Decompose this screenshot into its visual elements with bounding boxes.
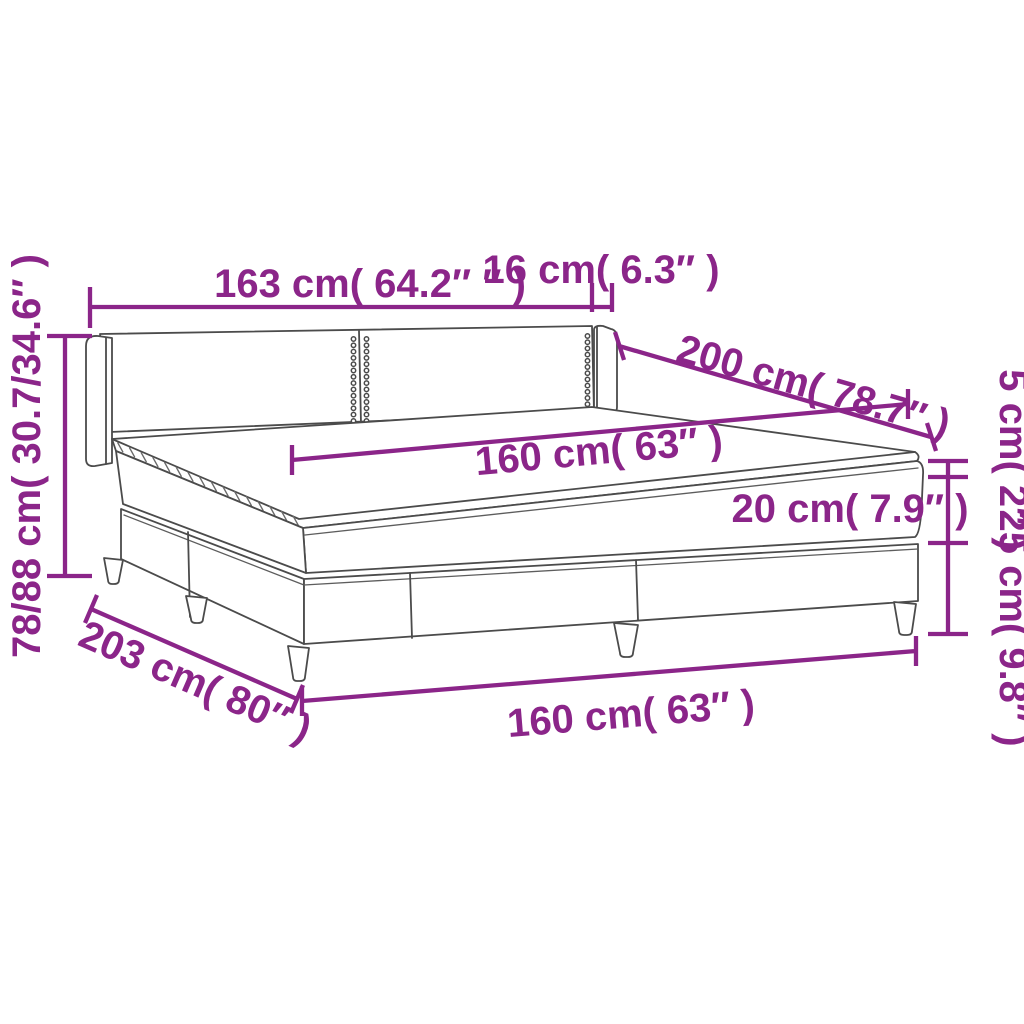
bed-leg xyxy=(288,646,309,681)
dimension-base-width: 160 cm( 63″ ) xyxy=(302,636,916,746)
tufting-dot xyxy=(351,362,355,366)
tufting-dot xyxy=(585,359,589,363)
tufting-dot xyxy=(364,362,368,366)
tufting-dot xyxy=(351,349,355,353)
bed-leg xyxy=(894,602,916,635)
headboard-left-wing xyxy=(86,336,112,466)
tufting-dot xyxy=(351,412,355,416)
tufting-dot xyxy=(585,390,589,394)
bed-leg xyxy=(104,558,123,584)
tufting-dot xyxy=(364,375,368,379)
dimension-total-height: 78/88 cm( 30.7/34.6″ ) xyxy=(5,254,92,658)
bed-dimension-diagram: 163 cm( 64.2″ ″ ) 16 cm( 6.3″ ) 200 cm( … xyxy=(0,0,1024,1024)
tufting-dot xyxy=(351,387,355,391)
tufting-dot xyxy=(585,346,589,350)
tufting-dot xyxy=(351,368,355,372)
tufting-dot xyxy=(585,365,589,369)
tufting-dot xyxy=(364,356,368,360)
tufting-dot xyxy=(351,343,355,347)
tufting-dot xyxy=(351,337,355,341)
tufting-dot xyxy=(585,371,589,375)
tufting-dot xyxy=(351,356,355,360)
dimension-label-base-width: 160 cm( 63″ ) xyxy=(505,682,756,746)
tufting-dot xyxy=(364,349,368,353)
dimension-label-base-height: 25 cm( 9.8″ ) xyxy=(991,509,1024,746)
dimension-label-mattress-height: 20 cm( 7.9″ ) xyxy=(731,487,968,531)
tufting-dot xyxy=(364,412,368,416)
tufting-dot xyxy=(364,337,368,341)
tufting-dot xyxy=(351,381,355,385)
tufting-dot xyxy=(585,340,589,344)
diagram-canvas: 163 cm( 64.2″ ″ ) 16 cm( 6.3″ ) 200 cm( … xyxy=(0,0,1024,1024)
tufting-dot xyxy=(351,406,355,410)
bed-leg xyxy=(614,623,638,657)
tufting-dot xyxy=(351,394,355,398)
tufting-dot xyxy=(585,352,589,356)
tufting-dot xyxy=(364,400,368,404)
dimension-label-total-height: 78/88 cm( 30.7/34.6″ ) xyxy=(5,254,49,658)
tufting-dot xyxy=(364,387,368,391)
bed-leg xyxy=(186,596,207,623)
tufting-dot xyxy=(364,406,368,410)
dimension-label-wing-depth: 16 cm( 6.3″ ) xyxy=(482,248,719,292)
dimension-mattress-height: 20 cm( 7.9″ ) xyxy=(731,487,968,531)
tufting-dot xyxy=(585,402,589,406)
tufting-dot xyxy=(364,394,368,398)
tufting-dot xyxy=(364,381,368,385)
tufting-dot xyxy=(364,343,368,347)
tufting-dot xyxy=(585,377,589,381)
tufting-dot xyxy=(585,334,589,338)
tufting-dot xyxy=(351,400,355,404)
tufting-dot xyxy=(585,383,589,387)
tufting-dot xyxy=(364,368,368,372)
tufting-dot xyxy=(585,396,589,400)
dimension-label-headboard-width: 163 cm( 64.2″ ″ ) xyxy=(214,262,526,306)
tufting-dot xyxy=(351,375,355,379)
